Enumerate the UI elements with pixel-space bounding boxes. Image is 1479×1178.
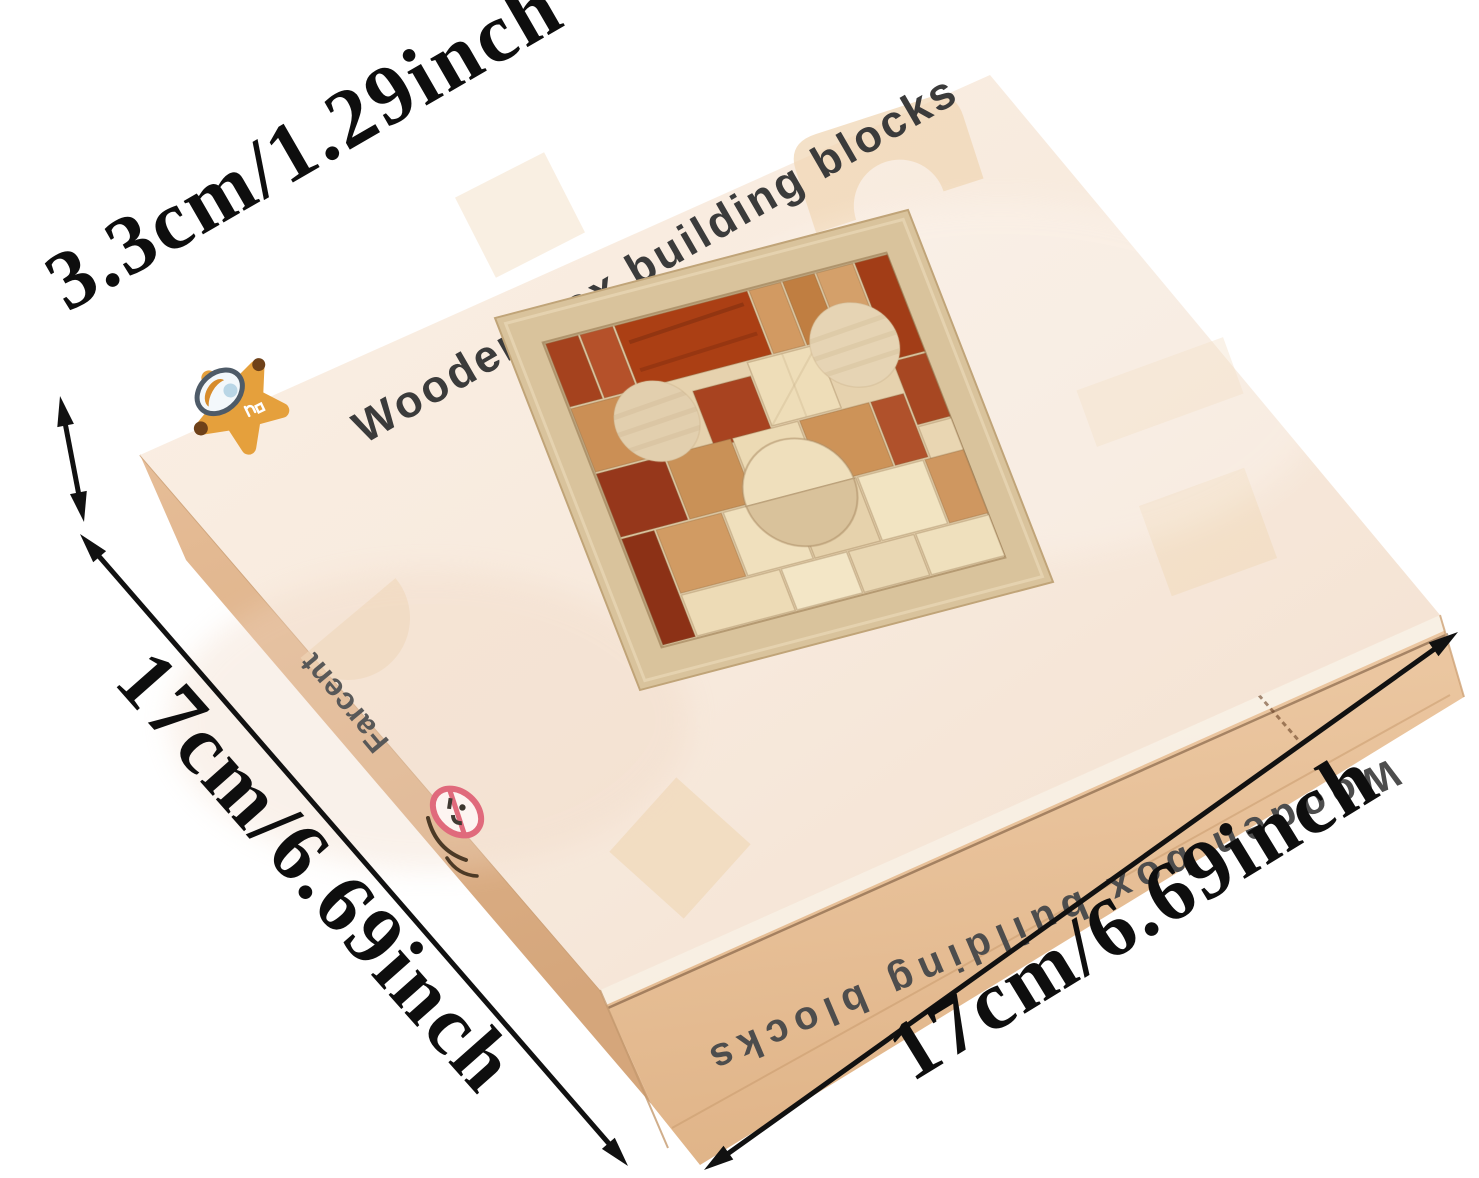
- product-photo: Wooden box building blocks: [0, 0, 1479, 1178]
- height-label: 3.3cm/1.29inch: [30, 0, 578, 329]
- height-arrow: [57, 396, 87, 522]
- scene: Wooden box building blocks: [0, 0, 1479, 1178]
- box: Wooden box building blocks: [140, 64, 1464, 1165]
- watermark-square-top: [455, 152, 585, 278]
